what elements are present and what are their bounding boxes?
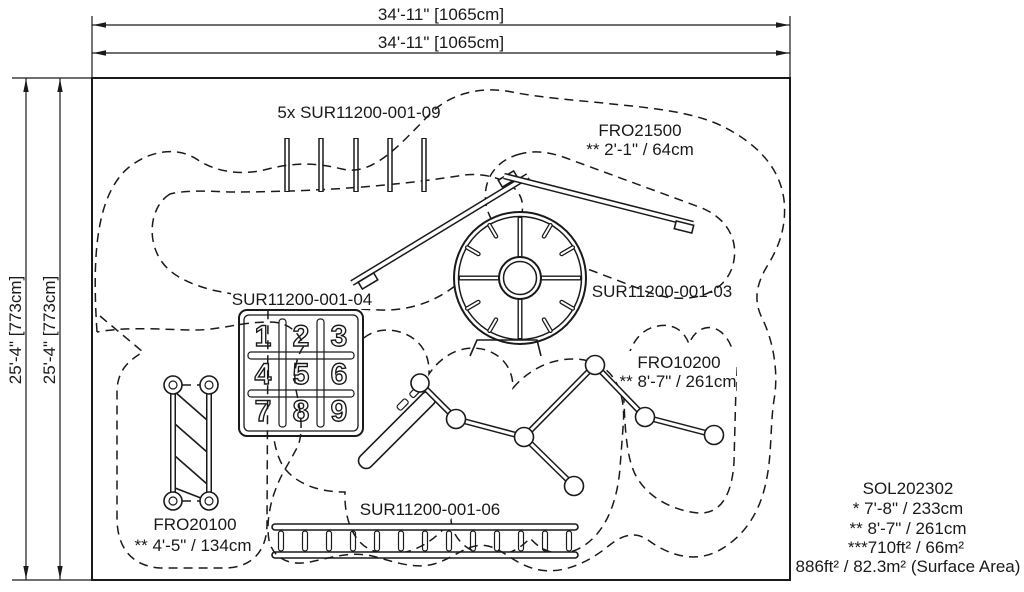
posts-label: 5x SUR11200-001-09 <box>277 103 440 122</box>
safety-perimeter-outline <box>95 90 784 571</box>
dim-top-outer-label: 34'-11" [1065cm] <box>378 5 504 24</box>
panel-digit: 7 <box>255 395 272 428</box>
fro10200-label: FRO10200 <box>637 353 720 372</box>
info-line-2: ** 8'-7" / 261cm <box>850 519 967 538</box>
spinner-label: SUR11200-001-03 <box>592 282 733 301</box>
ladder-rungs <box>279 531 572 551</box>
model-number: SOL202302 <box>863 479 954 498</box>
climber-fro20100 <box>164 376 218 510</box>
climber-rungs <box>175 392 207 500</box>
info-line-3: ***710ft² / 66m² <box>848 538 965 557</box>
fro10200-dim-label: ** 8'-7" / 261cm <box>620 372 737 391</box>
panel-digits: 1 2 3 4 5 6 7 8 9 <box>255 320 348 428</box>
fro20100-label: FRO20100 <box>153 515 236 534</box>
playground-plan-svg: 1 2 3 4 5 6 7 8 9 <box>0 0 1024 592</box>
fro20100-dim-label: ** 4'-5" / 134cm <box>135 536 252 555</box>
dim-left-inner-label: 25'-4" [773cm] <box>40 276 59 385</box>
spinner-sur11200-001-03 <box>454 212 586 344</box>
ladder-rail-bottom <box>272 552 578 558</box>
panel-digit: 2 <box>293 320 310 353</box>
panel-label: SUR11200-001-04 <box>232 290 373 309</box>
panel-digit: 9 <box>331 395 348 428</box>
posts-sur11200-001-09 <box>287 138 424 192</box>
panel-digit: 6 <box>331 358 348 391</box>
panel-digit: 1 <box>255 320 272 353</box>
info-line-1: * 7'-8" / 233cm <box>853 499 963 518</box>
dim-top-inner-label: 34'-11" [1065cm] <box>378 33 504 52</box>
info-block: SOL202302 * 7'-8" / 233cm ** 8'-7" / 261… <box>796 479 1021 576</box>
number-panel-sur11200-001-04: 1 2 3 4 5 6 7 8 9 <box>239 310 363 436</box>
panel-digit: 4 <box>255 358 272 391</box>
fro21500-label: FRO21500 <box>598 121 681 140</box>
ladder-rail-top <box>272 524 578 530</box>
info-line-4: 886ft² / 82.3m² (Surface Area) <box>796 557 1021 576</box>
panel-digit: 3 <box>331 320 348 353</box>
dim-left-outer-label: 25'-4" [773cm] <box>6 276 25 385</box>
ladder-label: SUR11200-001-06 <box>360 500 501 519</box>
site-plan-canvas: 1 2 3 4 5 6 7 8 9 <box>0 0 1024 592</box>
fro21500-dim-label: ** 2'-1" / 64cm <box>586 140 694 159</box>
